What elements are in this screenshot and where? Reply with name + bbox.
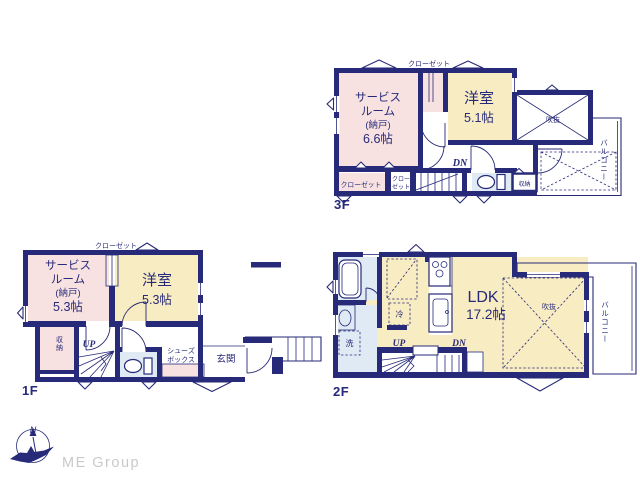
closet-top-label-3f: クローゼット	[408, 59, 450, 68]
washroom-2f	[338, 305, 377, 372]
floor-label-3f: 3F	[334, 197, 350, 212]
dn-label-2f: DN	[451, 339, 467, 349]
ldk-label-2f: LDK	[467, 289, 498, 306]
svg-text:5.3帖: 5.3帖	[142, 292, 172, 307]
compass-north-label: N	[30, 425, 37, 435]
balcony-label-3f: バルコニー	[599, 139, 608, 182]
void-label-2f: 吹抜	[542, 302, 556, 311]
compass: N	[10, 425, 54, 463]
closet-a-label-3f: クローゼット	[341, 180, 382, 189]
floor-label-2f: 2F	[333, 384, 349, 399]
svg-text:5.3帖: 5.3帖	[53, 299, 83, 314]
void-label-3f: 吹抜	[546, 115, 560, 124]
svg-text:(納戸): (納戸)	[55, 287, 80, 299]
dn-label-3f: DN	[452, 158, 468, 169]
floor-plan-2f: LDK 17.2帖 吹抜 バルコニー 冷 洗 UP DN 2F	[327, 245, 636, 400]
stairs-3f	[416, 173, 458, 191]
svg-text:(納戸): (納戸)	[365, 119, 390, 131]
svg-text:ボックス: ボックス	[167, 356, 195, 364]
svg-text:ルーム: ルーム	[361, 105, 395, 118]
shoes-label-1f: シューズ	[167, 346, 195, 355]
svg-text:17.2帖: 17.2帖	[466, 307, 506, 322]
floorplan-canvas: クローゼット サービス ルーム (納戸) 6.6帖 洋室 5.1帖 吹抜 バルコ…	[0, 0, 640, 480]
stairs-1f	[79, 351, 114, 377]
washer-label-2f: 洗	[346, 338, 354, 348]
svg-text:5.1帖: 5.1帖	[464, 110, 494, 125]
scale-bar	[251, 262, 281, 268]
bedroom-label-3f: 洋室	[464, 90, 494, 107]
stair-closet-2f	[467, 352, 483, 372]
up-label-1f: UP	[83, 340, 96, 350]
toilet-icon-1f	[125, 358, 153, 374]
bathtub-icon-2f	[339, 260, 361, 298]
toilet-icon-3f	[478, 175, 506, 190]
closet-top-label-1f: クローゼット	[95, 241, 137, 250]
shoes-box-1f	[162, 364, 204, 377]
entrance-label-1f: 玄関	[216, 353, 235, 365]
service-room-label-3f: サービス	[355, 91, 401, 104]
brand-logo-text: ME Group	[62, 455, 140, 471]
balcony-label-2f: バルコニー	[600, 301, 609, 344]
up-label-2f: UP	[393, 339, 406, 349]
svg-text:ルーム: ルーム	[51, 273, 85, 286]
fridge-label-2f: 冷	[396, 309, 404, 319]
kitchen-icons-2f	[429, 257, 452, 332]
storage-label-3f: 収納	[518, 180, 530, 188]
svg-text:6.6帖: 6.6帖	[363, 131, 393, 146]
service-room-label-1f: サービス	[45, 259, 91, 272]
floor-label-1f: 1F	[22, 383, 38, 398]
bedroom-label-1f: 洋室	[142, 272, 172, 289]
svg-text:ゼット: ゼット	[392, 183, 410, 191]
storage-label-1f: 収納	[56, 336, 64, 352]
floor-plan-3f: クローゼット サービス ルーム (納戸) 6.6帖 洋室 5.1帖 吹抜 バルコ…	[327, 59, 621, 212]
closet-b-label-3f: クロー	[392, 176, 410, 183]
floorplan-page: クローゼット サービス ルーム (納戸) 6.6帖 洋室 5.1帖 吹抜 バルコ…	[0, 0, 640, 480]
